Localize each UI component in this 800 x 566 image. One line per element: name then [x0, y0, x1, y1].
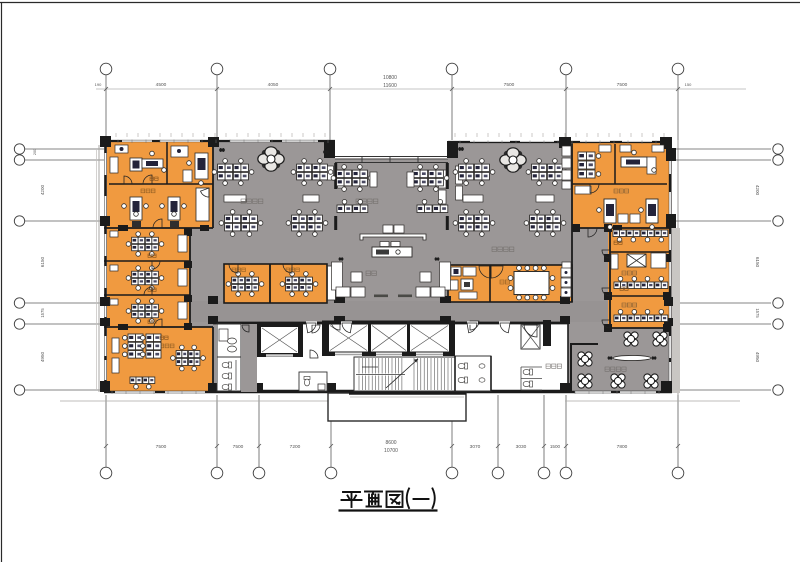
- svg-text:11600: 11600: [383, 83, 397, 89]
- svg-text:4200: 4200: [40, 184, 45, 195]
- svg-text:7500: 7500: [617, 82, 628, 88]
- svg-text:7500: 7500: [156, 444, 167, 450]
- svg-text:3030: 3030: [516, 444, 527, 450]
- svg-text:7500: 7500: [504, 82, 515, 88]
- svg-text:4950: 4950: [40, 351, 45, 362]
- svg-text:150: 150: [685, 82, 692, 87]
- svg-text:4500: 4500: [156, 82, 167, 88]
- svg-text:1575: 1575: [755, 308, 760, 318]
- svg-text:10800: 10800: [383, 75, 397, 81]
- svg-text:1500: 1500: [550, 444, 561, 449]
- svg-text:4200: 4200: [755, 185, 760, 196]
- svg-text:3070: 3070: [470, 444, 481, 450]
- svg-text:7500: 7500: [233, 444, 244, 450]
- svg-text:190: 190: [95, 82, 102, 87]
- svg-text:8600: 8600: [385, 440, 396, 446]
- svg-text:7200: 7200: [290, 444, 301, 450]
- svg-text:4950: 4950: [755, 352, 760, 363]
- svg-text:200: 200: [33, 149, 37, 155]
- svg-text:6150: 6150: [755, 257, 760, 268]
- svg-text:10700: 10700: [384, 448, 398, 454]
- svg-text:7800: 7800: [617, 444, 628, 450]
- svg-text:6150: 6150: [40, 256, 45, 267]
- svg-text:4050: 4050: [268, 82, 279, 88]
- svg-text:1575: 1575: [40, 308, 45, 318]
